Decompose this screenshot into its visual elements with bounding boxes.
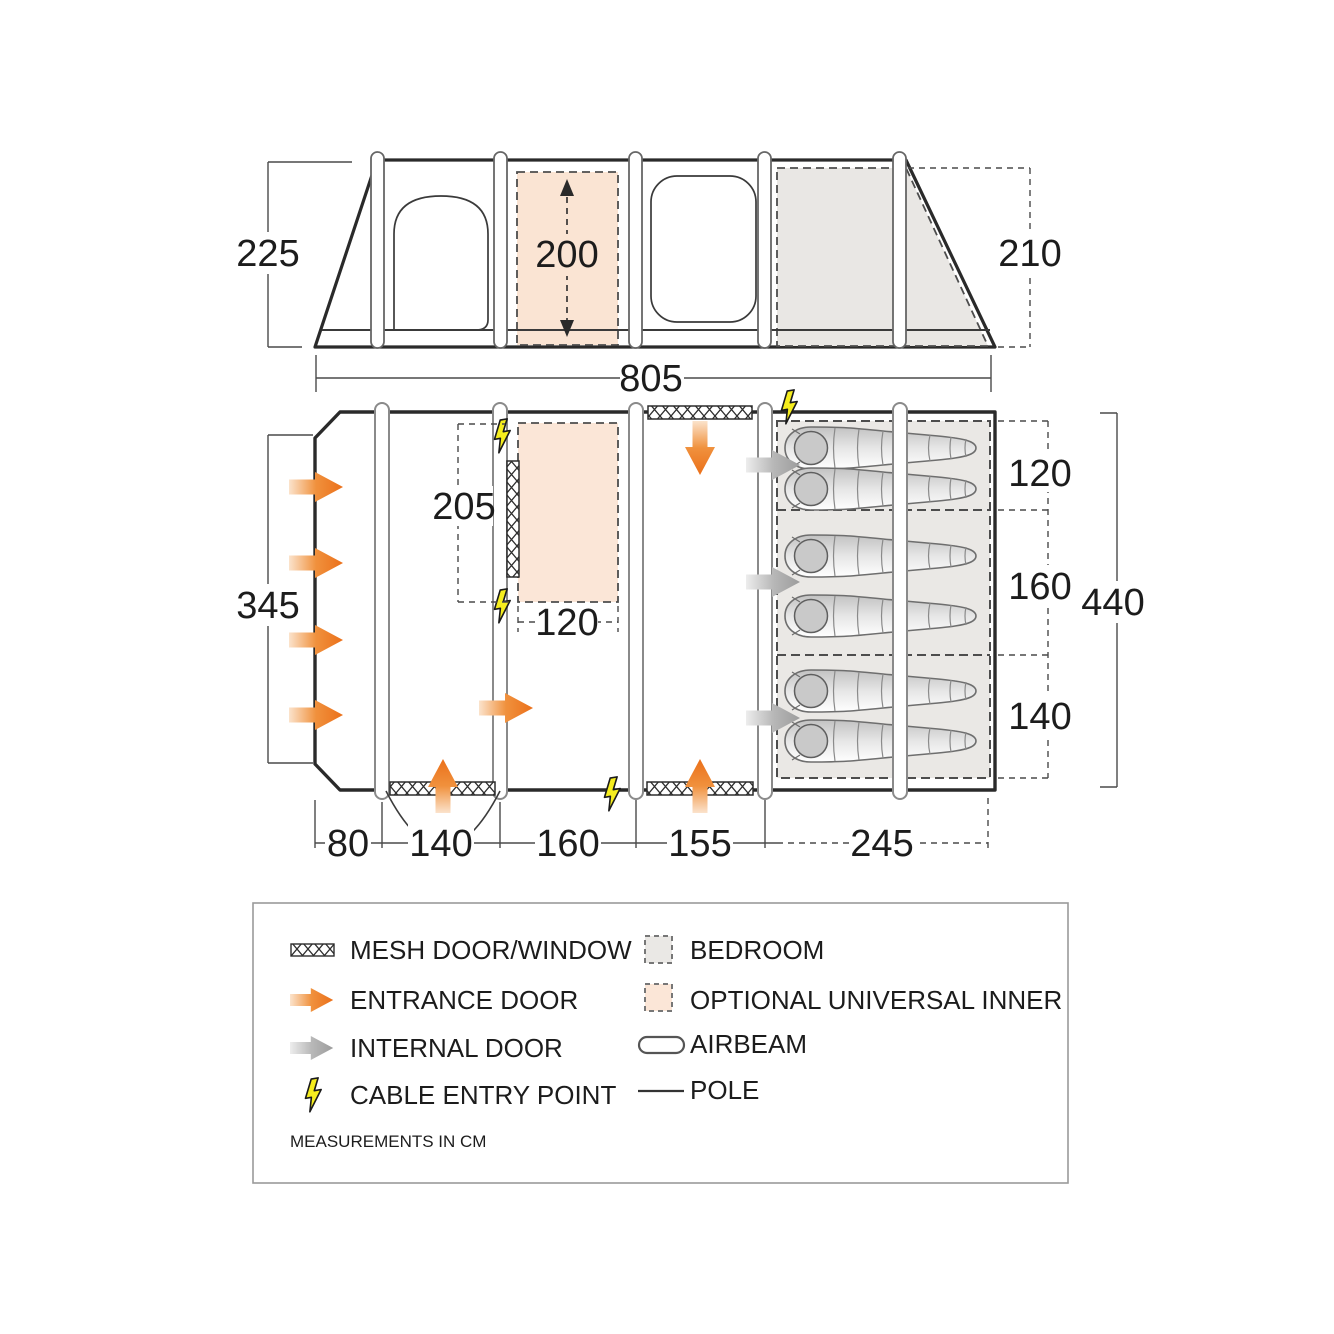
dim-label-120-inner: 120 <box>535 602 598 644</box>
legend-label-cable: CABLE ENTRY POINT <box>350 1080 616 1110</box>
dim-label-225: 225 <box>236 233 299 275</box>
airbeam <box>893 403 907 799</box>
dim-label-210: 210 <box>998 233 1061 275</box>
dim-label-120: 120 <box>1008 453 1071 495</box>
airbeam <box>629 403 643 799</box>
dim-label-345: 345 <box>236 585 299 627</box>
optional-inner-area <box>518 423 618 602</box>
dim-width-total: 805 <box>316 355 991 400</box>
side-view: 225 200 210 805 <box>236 152 1061 400</box>
legend-item-optional-inner: OPTIONAL UNIVERSAL INNER <box>645 984 1062 1015</box>
airbeam-icon <box>639 1037 684 1053</box>
bedroom-swatch <box>645 936 672 963</box>
legend-label-airbeam: AIRBEAM <box>690 1029 807 1059</box>
dim-label-805: 805 <box>619 358 682 400</box>
dim-label-440: 440 <box>1081 582 1144 624</box>
legend-label-optional-inner: OPTIONAL UNIVERSAL INNER <box>690 985 1062 1015</box>
mesh-door-window <box>507 461 519 577</box>
legend-label-mesh: MESH DOOR/WINDOW <box>350 935 632 965</box>
side-view-bedroom <box>777 168 988 346</box>
dim-label-205: 205 <box>432 486 495 528</box>
dim-label-140b: 140 <box>409 823 472 865</box>
legend-item-bedroom: BEDROOM <box>645 935 824 965</box>
legend-note: MEASUREMENTS IN CM <box>290 1132 486 1151</box>
dim-bedroom-sections: 120 160 140 <box>998 421 1072 778</box>
diagram-canvas: 225 200 210 805 <box>0 0 1334 1334</box>
legend-label-pole: POLE <box>690 1075 759 1105</box>
dim-label-200: 200 <box>535 234 598 276</box>
legend-label-internal: INTERNAL DOOR <box>350 1033 563 1063</box>
legend-item-cable: CABLE ENTRY POINT <box>302 1078 616 1112</box>
dim-label-245: 245 <box>850 823 913 865</box>
mesh-door-window <box>648 406 752 419</box>
optional-inner-swatch <box>645 984 672 1011</box>
dim-label-155: 155 <box>668 823 731 865</box>
tent-floorplan-diagram: 225 200 210 805 <box>0 0 1334 1334</box>
airbeam <box>375 403 389 799</box>
dim-label-140: 140 <box>1008 696 1071 738</box>
mesh-door-window-icon <box>291 944 334 956</box>
dim-label-160b: 160 <box>536 823 599 865</box>
dim-depth-total: 440 <box>1081 413 1144 787</box>
dim-label-160: 160 <box>1008 566 1071 608</box>
legend-label-entrance: ENTRANCE DOOR <box>350 985 578 1015</box>
dim-bottom-row: 80 140 160 155 245 <box>315 798 988 865</box>
legend-label-bedroom: BEDROOM <box>690 935 824 965</box>
dim-label-80: 80 <box>327 823 369 865</box>
legend: MESH DOOR/WINDOW ENTRANCE DOOR INTERNAL … <box>253 903 1068 1183</box>
floor-plan: 345 205 120 120 160 140 440 <box>236 390 1144 865</box>
